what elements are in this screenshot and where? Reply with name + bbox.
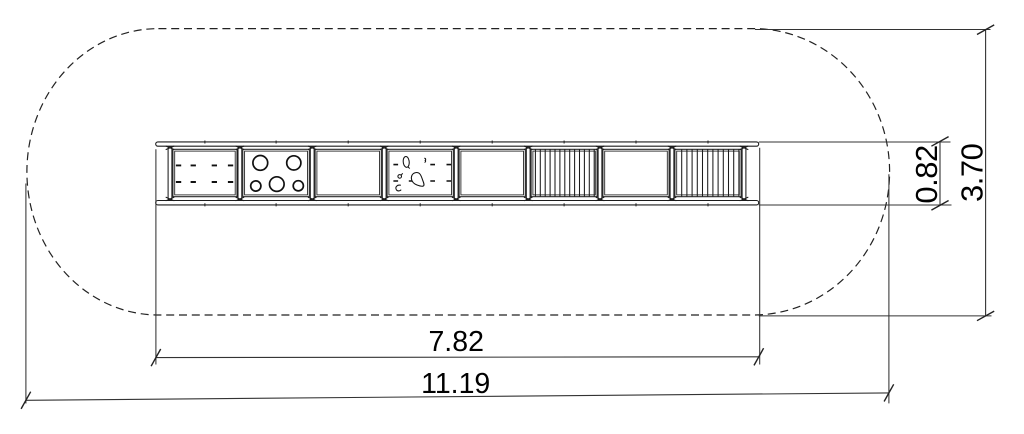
svg-text:7.82: 7.82	[428, 326, 483, 358]
svg-text:0.82: 0.82	[909, 145, 944, 203]
svg-text:11.19: 11.19	[421, 368, 490, 400]
svg-text:3.70: 3.70	[955, 143, 990, 202]
